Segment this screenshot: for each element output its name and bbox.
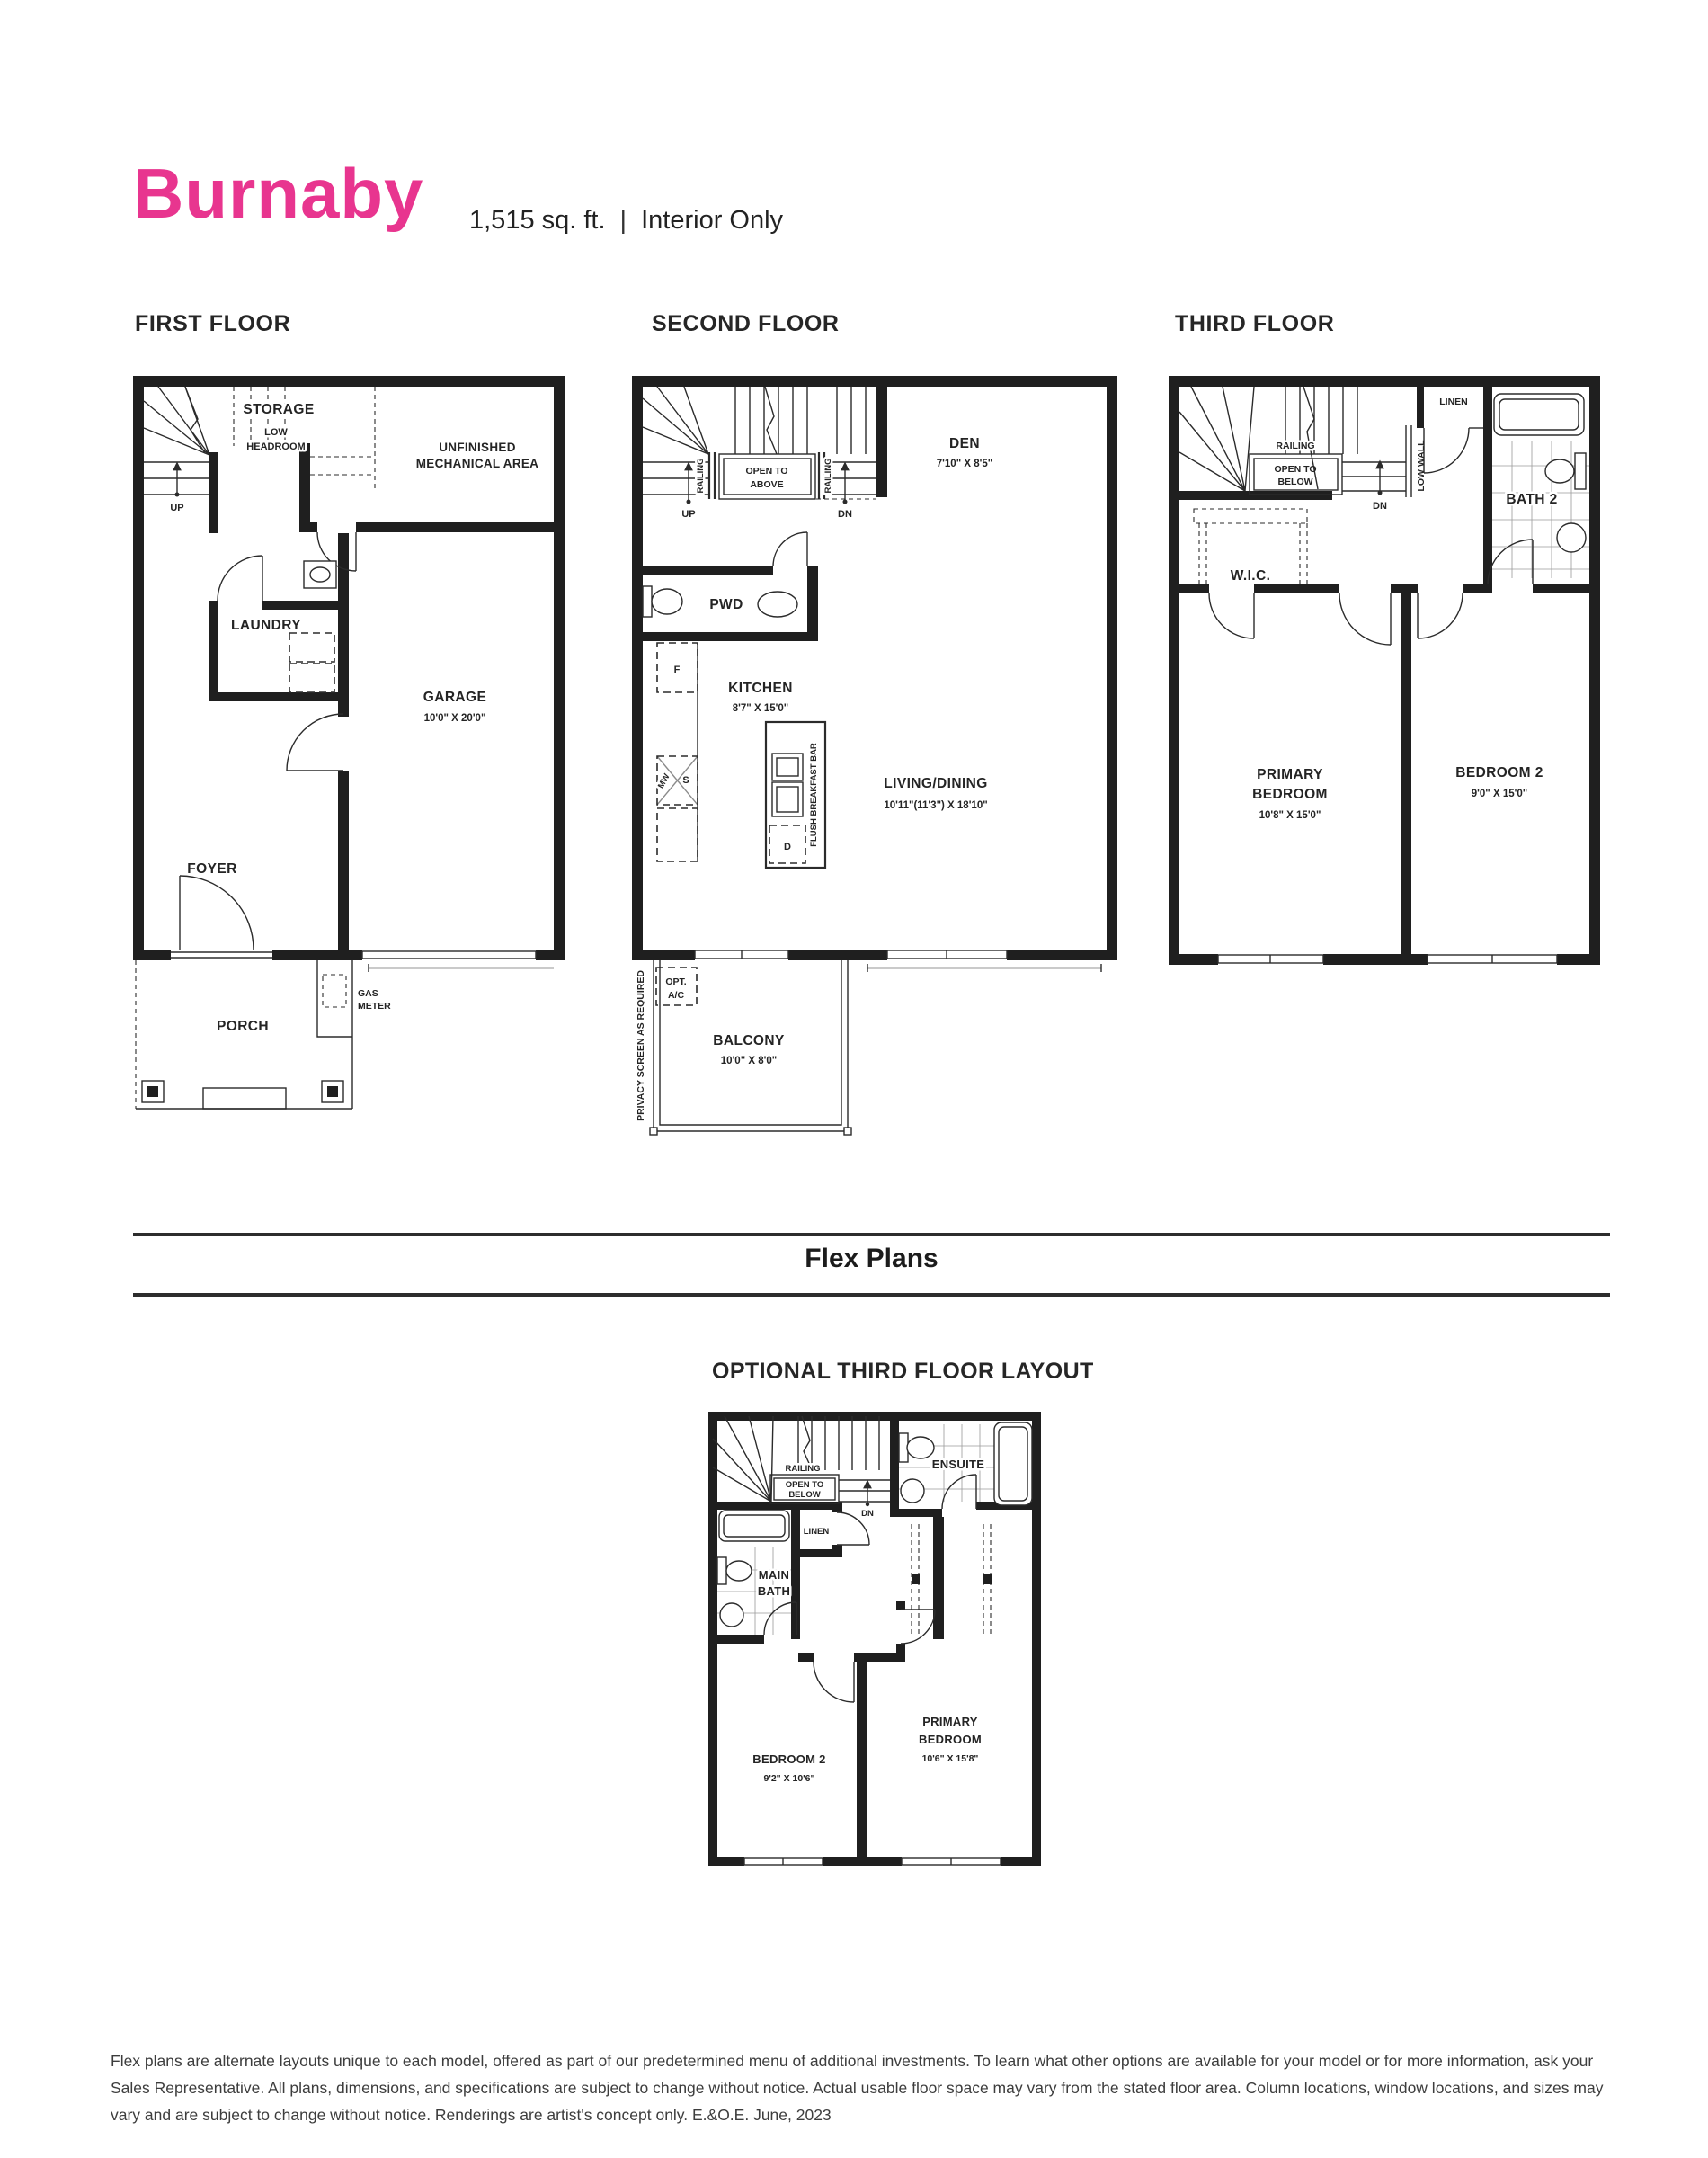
bedroom2-door <box>1418 593 1463 638</box>
primary-bedroom-dims: 10'6" X 15'8" <box>922 1753 979 1764</box>
storage-label: STORAGE <box>243 402 314 417</box>
third-floor-walls <box>1169 376 1600 965</box>
third-floor-plan: RAILING OPEN TO BELOW DN LOW WALL LINEN <box>1169 376 1600 974</box>
stove-label: S <box>682 775 689 786</box>
flush-breakfast-bar-label: FLUSH BREAKFAST BAR <box>809 743 819 847</box>
sqft-label: 1,515 sq. ft. <box>469 206 606 236</box>
bedroom2-label: BEDROOM 2 <box>752 1752 825 1766</box>
primary-bedroom-label-line1: PRIMARY <box>922 1715 978 1728</box>
open-to-below-label-line2: BELOW <box>788 1490 820 1500</box>
bath2-label: BATH 2 <box>1506 492 1557 507</box>
linen-label: LINEN <box>1439 397 1468 407</box>
low-headroom-label-line2: HEADROOM <box>246 441 305 452</box>
flex-plans-heading: Flex Plans <box>133 1244 1610 1274</box>
primary-bedroom-label-line2: BEDROOM <box>1252 787 1328 802</box>
pwd-sink-icon <box>758 592 797 617</box>
first-floor-heading: FIRST FLOOR <box>135 311 290 337</box>
ensuite-label: ENSUITE <box>932 1458 984 1471</box>
dishwasher-label: D <box>784 842 791 852</box>
down-arrow-icon <box>866 1482 869 1506</box>
kitchen-dims: 8'7" X 15'0" <box>733 703 788 714</box>
balcony-dims: 10'0" X 8'0" <box>721 1056 777 1066</box>
living-dining-dims: 10'11"(11'3") X 18'10" <box>884 800 987 811</box>
main-bath-label-line1: MAIN <box>759 1568 789 1582</box>
flex-divider-bottom <box>133 1293 1610 1297</box>
mechanical-label-line2: MECHANICAL AREA <box>416 457 539 470</box>
subtitle-separator: | <box>620 206 627 236</box>
first-floor-plan: STORAGE LOW HEADROOM UNFINISHED MECHANIC… <box>133 376 565 1118</box>
main-bath-sink-icon <box>720 1603 743 1627</box>
primary-bedroom-label-line1: PRIMARY <box>1257 767 1323 782</box>
low-headroom-label-line1: LOW <box>264 427 288 438</box>
disclaimer-line-3: vary and are subject to change without n… <box>111 2101 1603 2128</box>
bath2-door <box>1488 539 1533 584</box>
third-floor-stairs <box>1179 387 1406 491</box>
railing-right-label: RAILING <box>823 458 833 493</box>
bathtub-icon <box>994 1422 1032 1505</box>
disclaimer-line-2: Sales Representative. All plans, dimensi… <box>111 2074 1603 2101</box>
low-wall-label: LOW WALL <box>1416 440 1427 492</box>
den-label: DEN <box>949 436 980 451</box>
dn-label: DN <box>861 1509 874 1519</box>
garage-door <box>362 951 554 972</box>
bedroom2-dims: 9'0" X 15'0" <box>1472 789 1527 799</box>
low-wall-line <box>1406 425 1411 497</box>
gas-meter-icon <box>317 960 352 1037</box>
railing-left-label: RAILING <box>696 458 706 493</box>
optional-third-floor-plan: RAILING OPEN TO BELOW DN ENSUITE <box>708 1412 1041 1875</box>
primary-bedroom-dims: 10'8" X 15'0" <box>1259 810 1321 821</box>
wic-door <box>1209 593 1254 638</box>
foyer-garage-door <box>287 714 343 771</box>
garage-dims: 10'0" X 20'0" <box>424 713 486 724</box>
dn-label: DN <box>838 509 852 520</box>
open-to-above-label-line2: ABOVE <box>750 479 783 490</box>
garage-label: GARAGE <box>423 690 486 705</box>
microwave-label: MW <box>656 772 672 790</box>
bath2-sink-icon <box>1557 523 1586 552</box>
railing-label: RAILING <box>785 1464 820 1474</box>
gas-meter-label-line2: METER <box>358 1001 391 1012</box>
bedroom2-door <box>814 1662 854 1702</box>
down-arrow-icon <box>1378 462 1383 495</box>
up-label: UP <box>170 503 183 513</box>
opt-ac-label-line2: A/C <box>668 990 685 1001</box>
laundry-door <box>218 556 262 601</box>
gas-meter-label-line1: GAS <box>358 988 378 999</box>
open-to-above-label-line1: OPEN TO <box>745 466 787 477</box>
toilet-icon <box>899 1433 934 1462</box>
linen-label: LINEN <box>804 1527 830 1537</box>
second-floor-plan: OPEN TO ABOVE RAILING RAILING UP DN DEN … <box>632 376 1117 1149</box>
up-arrow-icon <box>687 464 691 504</box>
porch-outline <box>136 960 352 1109</box>
opt-ac-label-line1: OPT. <box>665 976 686 987</box>
front-door <box>171 876 272 958</box>
ensuite-door <box>942 1475 976 1509</box>
balcony-label: BALCONY <box>713 1033 785 1048</box>
open-to-above-callout <box>719 454 815 499</box>
wic-label: W.I.C. <box>1231 568 1271 584</box>
railing-label: RAILING <box>1276 441 1314 451</box>
optional-layout-heading: OPTIONAL THIRD FLOOR LAYOUT <box>712 1359 1094 1385</box>
third-floor-heading: THIRD FLOOR <box>1175 311 1334 337</box>
porch-label: PORCH <box>217 1019 269 1034</box>
bathtub-icon <box>719 1511 789 1541</box>
subtitle: 1,515 sq. ft. | Interior Only <box>469 206 783 236</box>
bedroom2-label: BEDROOM 2 <box>1455 765 1543 780</box>
bathtub-icon <box>1494 394 1584 435</box>
open-to-below-label-line1: OPEN TO <box>1274 464 1316 475</box>
toilet-icon <box>717 1557 752 1584</box>
down-arrow-icon <box>843 464 848 504</box>
laundry-sink-icon <box>304 561 336 588</box>
mechanical-label-line1: UNFINISHED <box>439 441 516 454</box>
washer-dryer-icons <box>289 633 334 692</box>
disclaimer-line-1: Flex plans are alternate layouts unique … <box>111 2047 1603 2074</box>
den-dims: 7'10" X 8'5" <box>937 459 992 469</box>
flex-divider-top <box>133 1233 1610 1236</box>
up-arrow-icon <box>175 464 180 497</box>
open-to-below-label-line1: OPEN TO <box>786 1480 824 1490</box>
dn-label: DN <box>1373 501 1387 512</box>
fridge-label: F <box>674 664 681 675</box>
floorplan-page: Burnaby 1,515 sq. ft. | Interior Only FI… <box>0 0 1708 2158</box>
privacy-screen-label: PRIVACY SCREEN AS REQUIRED <box>636 970 646 1121</box>
model-title: Burnaby <box>133 158 423 228</box>
up-label: UP <box>681 509 695 520</box>
closet-dashes <box>912 1524 992 1635</box>
toilet-icon <box>643 586 682 617</box>
microwave-stove-icon <box>657 756 698 861</box>
disclaimer: Flex plans are alternate layouts unique … <box>111 2047 1603 2128</box>
linen-door <box>1424 428 1483 473</box>
open-to-below-label-line2: BELOW <box>1277 477 1312 487</box>
pwd-door <box>773 532 807 566</box>
primary-bedroom-door <box>1339 593 1391 645</box>
kitchen-label: KITCHEN <box>728 681 793 696</box>
main-bath-label-line2: BATH <box>758 1584 790 1598</box>
primary-bedroom-label-line2: BEDROOM <box>919 1733 982 1746</box>
pwd-label: PWD <box>709 597 743 612</box>
foyer-label: FOYER <box>187 861 236 877</box>
bedroom2-dims: 9'2" X 10'6" <box>764 1773 815 1784</box>
primary-bedroom-door <box>901 1610 935 1644</box>
plan-type-label: Interior Only <box>641 206 783 236</box>
second-floor-heading: SECOND FLOOR <box>652 311 840 337</box>
living-dining-label: LIVING/DINING <box>884 776 987 791</box>
laundry-label: LAUNDRY <box>231 618 301 633</box>
ensuite-sink-icon <box>901 1479 924 1503</box>
